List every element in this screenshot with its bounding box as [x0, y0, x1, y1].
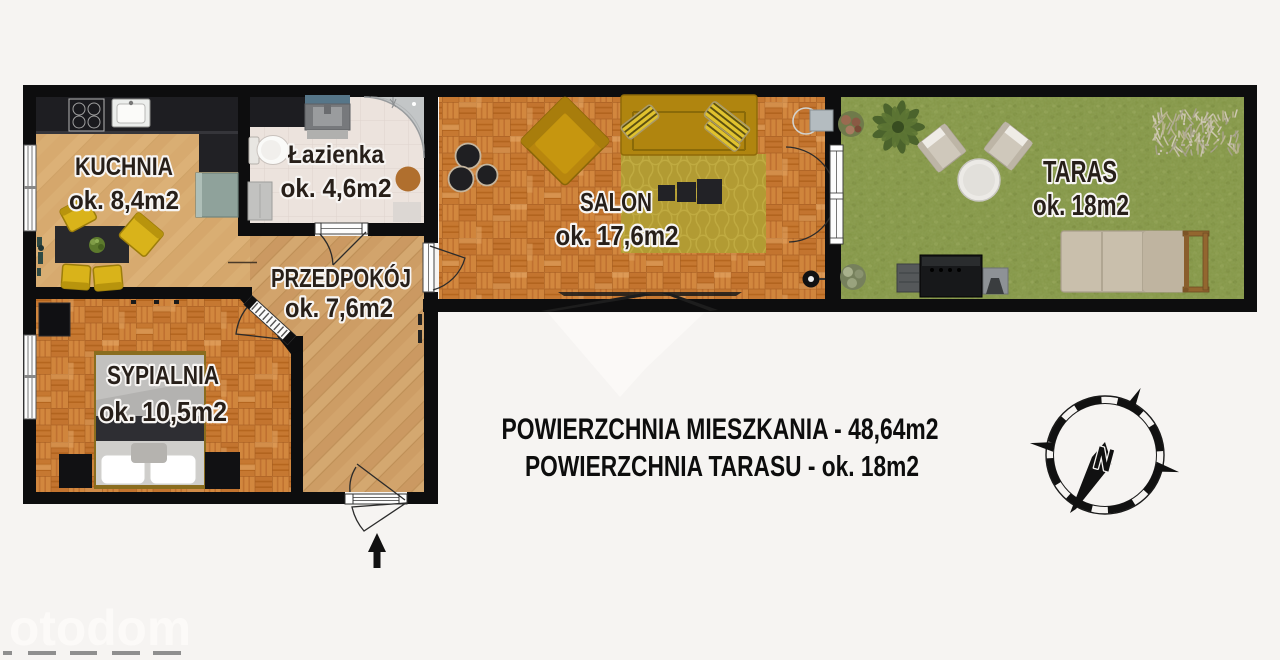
svg-text:ok. 8,4m2: ok. 8,4m2: [69, 185, 179, 215]
svg-text:ok. 10,5m2: ok. 10,5m2: [99, 396, 227, 427]
svg-text:POWIERZCHNIA MIESZKANIA - 48,6: POWIERZCHNIA MIESZKANIA - 48,64m2: [502, 413, 939, 446]
svg-text:ok. 18m2: ok. 18m2: [1033, 190, 1129, 222]
svg-text:TARAS: TARAS: [1043, 154, 1117, 189]
svg-text:PRZEDPOKÓJ: PRZEDPOKÓJ: [271, 263, 411, 293]
svg-text:ok. 7,6m2: ok. 7,6m2: [285, 293, 393, 323]
svg-text:KUCHNIA: KUCHNIA: [75, 153, 173, 181]
svg-text:Łazienka: Łazienka: [288, 141, 385, 169]
svg-text:otodom: otodom: [9, 600, 191, 655]
svg-text:ok. 17,6m2: ok. 17,6m2: [556, 220, 679, 251]
svg-text:SALON: SALON: [580, 187, 652, 217]
svg-text:SYPIALNIA: SYPIALNIA: [107, 360, 219, 390]
svg-text:ok. 4,6m2: ok. 4,6m2: [281, 173, 392, 203]
svg-text:POWIERZCHNIA TARASU - ok. 18m2: POWIERZCHNIA TARASU - ok. 18m2: [525, 451, 919, 483]
